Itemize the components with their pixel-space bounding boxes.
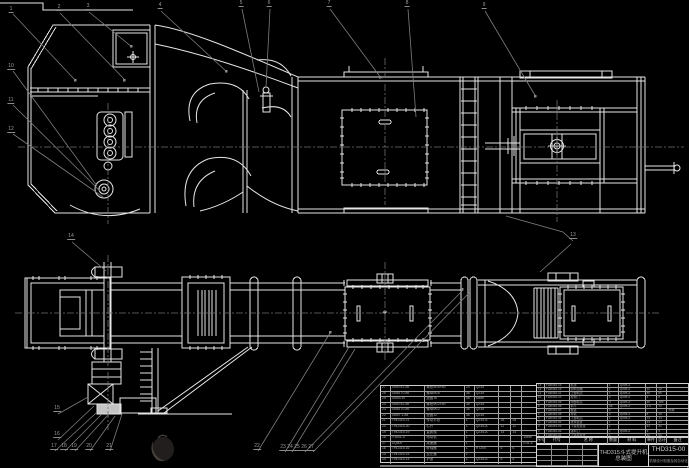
bom-cell: [522, 392, 536, 397]
bom-cell: [667, 413, 688, 416]
part-callout-number: 3: [86, 4, 91, 10]
bom-cell: [667, 425, 688, 428]
bom-cell: 直爬梯: [425, 431, 464, 436]
bom-cell: GB93-87: [391, 397, 426, 402]
bom-cell: 2: [537, 430, 545, 433]
bom-cell: 料斗: [570, 405, 608, 408]
bom-row: 14THD315-14护罩1Q235-A55: [381, 458, 536, 464]
part-callout-number: 7: [327, 1, 332, 7]
bom-cell: [522, 453, 536, 458]
boot-section: [460, 71, 674, 213]
bom-cell: 14: [499, 431, 511, 436]
bom-cell: [511, 453, 522, 458]
bom-cell: Q235: [475, 408, 500, 413]
bom-cell: 19: [381, 431, 391, 436]
stamp-seal: [151, 435, 174, 461]
bom-cell: 13: [537, 384, 545, 387]
part-callout-number: 11: [7, 98, 14, 104]
bom-cell: 1: [608, 421, 619, 424]
bom-cell: Q235-A: [619, 384, 646, 387]
bom-cell: THD315-04: [545, 421, 570, 424]
bom-cell: 1: [465, 453, 475, 458]
bom-cell: 65Mn: [475, 397, 500, 402]
bom-cell: 15: [381, 453, 391, 458]
bom-cell: 12: [537, 388, 545, 391]
ladder: [140, 352, 152, 401]
bom-cell: 4: [646, 396, 658, 399]
bom-cell: 17: [381, 442, 391, 447]
bom-cell: 螺母M12: [425, 408, 464, 413]
bom-cell: 14: [381, 458, 391, 464]
bom-header-row: 序号代号名 称数量材 料单件总计备注: [536, 437, 689, 444]
drawing-type: 总装图: [615, 456, 632, 462]
bom-cell: 传动平台: [425, 419, 464, 424]
bom-cell: 2: [608, 413, 619, 416]
bom-cell: THD315-03: [545, 425, 570, 428]
door-handle-slot: [377, 170, 389, 174]
bom-cell: 垫圈12: [425, 414, 464, 419]
bom-cell: 16: [657, 413, 667, 416]
bom-cell: 导轨: [570, 413, 608, 416]
bom-cell: [499, 392, 511, 397]
screw-end: [674, 165, 680, 171]
bom-cell: HT200: [475, 447, 500, 452]
bom-cell: ZQ500: [391, 442, 426, 447]
bom-cell: 1: [608, 430, 619, 433]
bom-cell: 25: [381, 397, 391, 402]
bom-cell: 24: [465, 386, 475, 391]
bom-cell: 74: [646, 417, 658, 420]
bom-cell: 张紧装置: [570, 421, 608, 424]
bom-cell: Q235-A: [619, 417, 646, 420]
bom-cell: 1: [608, 425, 619, 428]
bom-cell: 中部机壳: [570, 401, 608, 404]
bom-cell: 15kW: [522, 436, 536, 441]
part-callout-number: 12: [7, 127, 15, 133]
bom-cell: [499, 408, 511, 413]
bom-cell: 48: [465, 397, 475, 402]
bom-cell: 22: [381, 414, 391, 419]
bom-cell: 机罩: [570, 384, 608, 387]
bom-cell: [522, 397, 536, 402]
bom-cell: 74: [657, 417, 667, 420]
bom-cell: [475, 436, 500, 441]
part-callout-number: 21: [105, 444, 113, 450]
bom-cell: [499, 453, 511, 458]
part-callout-number: 6: [267, 1, 272, 7]
bom-cell: [619, 425, 646, 428]
bom-cell: [475, 453, 500, 458]
bom-cell: [499, 386, 511, 391]
bom-cell: 栏杆: [425, 425, 464, 430]
boot-plan: [478, 273, 637, 354]
bom-cell: 5: [537, 417, 545, 420]
bom-cell: [667, 396, 688, 399]
bom-cell: 螺栓M16×50: [425, 386, 464, 391]
bom-cell: Y160L-4: [391, 436, 426, 441]
part-callout-number: 2: [57, 5, 62, 11]
bom-cell: 4: [608, 401, 619, 404]
bom-cell: [522, 431, 536, 436]
bom-cell: Q235: [475, 403, 500, 408]
bom-cell: [667, 430, 688, 433]
bom-cell: Q235: [475, 392, 500, 397]
bom-cell: 1: [465, 442, 475, 447]
bom-cell: 36: [465, 414, 475, 419]
part-callout-number: 17: [50, 444, 58, 450]
bom-cell: Q235-A: [619, 405, 646, 408]
part-callout-number: 16: [53, 432, 61, 438]
part-callout-number: 10: [7, 64, 15, 70]
bom-cell: THD315-10: [545, 396, 570, 399]
centerlines: [15, 58, 684, 430]
bom-cell: 1: [465, 425, 475, 430]
part-callout-number: 27: [307, 445, 315, 451]
bom-cell: [522, 414, 536, 419]
bom-cell: THD315-07: [545, 409, 570, 412]
inspection-door-front: [340, 108, 429, 187]
bom-cell: 螺栓M12×40: [425, 403, 464, 408]
bom-cell: 20: [381, 425, 391, 430]
bom-cell: 48: [465, 392, 475, 397]
bom-cell: 1: [465, 447, 475, 452]
bom-cell: 5: [511, 458, 522, 464]
bom-cell: [646, 384, 658, 387]
bom-cell: 上部机壳: [570, 392, 608, 395]
bom-cell: [511, 397, 522, 402]
bom-cell: 45: [646, 401, 658, 404]
drawing-title-cell: THD315斗式提升机 总装图: [599, 445, 649, 466]
bom-cell: 1: [608, 417, 619, 420]
bom-cell: [619, 421, 646, 424]
reducer: [92, 362, 121, 384]
bom-cell: 72: [657, 405, 667, 408]
bom-cell: 板链: [570, 409, 608, 412]
bom-cell: 11: [511, 425, 522, 430]
bucket-upper: [189, 83, 249, 121]
bom-cell: THD315-15: [391, 453, 426, 458]
part-callout-number: 8: [405, 1, 410, 7]
bom-cell: 86: [657, 392, 667, 395]
bom-cell: 护罩: [425, 458, 464, 464]
bom-table-left: 27GB5782-86螺栓M16×5024Q23526GB6170-86螺母M1…: [380, 385, 537, 463]
signature-grid: [537, 445, 599, 466]
bom-cell: 27: [381, 386, 391, 391]
bom-cell: THD315-14: [391, 458, 426, 464]
bom-table-right: 13THD315-13机罩1Q235-A12THD315-12卸料溜槽1Q235…: [536, 383, 689, 437]
bom-cell: [499, 414, 511, 419]
bom-cell: Q235: [475, 414, 500, 419]
bom-cell: 9: [646, 430, 658, 433]
bucket-lower: [185, 157, 251, 206]
bom-cell: 逆止器: [425, 453, 464, 458]
bom-cell: [511, 386, 522, 391]
bom-cell: [619, 409, 646, 412]
bom-cell: [522, 408, 536, 413]
bom-cell: 14: [511, 431, 522, 436]
bom-cell: [667, 392, 688, 395]
bom-cell: 12: [657, 388, 667, 391]
bom-cell: GB5782-86: [391, 386, 426, 391]
bom-cell: [499, 442, 511, 447]
bom-cell: [511, 392, 522, 397]
front-view: [28, 25, 680, 216]
bom-cell: 23: [657, 421, 667, 424]
bom-cell: 1: [608, 384, 619, 387]
bom-cell: GB97.1-85: [391, 414, 426, 419]
bom-cell: GB6170-86: [391, 408, 426, 413]
part-callout-number: 22: [253, 444, 261, 450]
support-brace: [158, 347, 252, 413]
bom-cell: 螺母M16: [425, 392, 464, 397]
head-section: [28, 25, 155, 213]
part-callout-number: 1: [9, 7, 14, 13]
bom-cell: 28: [511, 419, 522, 424]
part-callout-number: 15: [53, 406, 61, 412]
bom-cell: 23: [381, 408, 391, 413]
cad-sheet: 27GB5782-86螺栓M16×5024Q23526GB6170-86螺母M1…: [0, 0, 689, 468]
bom-cell: 36: [465, 403, 475, 408]
bom-cell: 3: [537, 425, 545, 428]
bom-cell: 86: [646, 392, 658, 395]
bom-cell: 1: [465, 458, 475, 464]
bom-cell: Q235-A: [619, 396, 646, 399]
bom-cell: 11: [537, 392, 545, 395]
bom-cell: [667, 405, 688, 408]
bom-cell: i=31.5: [522, 442, 536, 447]
bom-cell: Q235-A: [475, 431, 500, 436]
bom-cell: 下部机壳: [570, 417, 608, 420]
bom-cell: GB5782-86: [391, 403, 426, 408]
bom-cell: [522, 403, 536, 408]
casing-flange: [250, 277, 258, 350]
bom-cell: 8: [537, 405, 545, 408]
bom-cell: 6: [537, 413, 545, 416]
bom-cell: 1: [465, 436, 475, 441]
motor-base: [97, 404, 121, 414]
bom-cell: [522, 419, 536, 424]
casing-flange: [637, 277, 645, 348]
bom-cell: 垫圈16: [425, 397, 464, 402]
transition-plan: [182, 275, 230, 350]
bom-cell: 8: [657, 396, 667, 399]
bom-cell: [511, 442, 522, 447]
bom-cell: 联轴器: [425, 447, 464, 452]
part-callout-number: 4: [158, 3, 163, 9]
bom-cell: 11: [499, 425, 511, 430]
bom-cell: [511, 403, 522, 408]
bom-cell: 10: [537, 396, 545, 399]
bom-cell: [499, 403, 511, 408]
drawing-number-cell: THD315-00 机械设计制造及其自动化: [649, 445, 688, 466]
bom-cell: THD315-05: [545, 417, 570, 420]
bom-cell: THD315-11: [545, 392, 570, 395]
bom-cell: 6: [511, 447, 522, 452]
bom-cell: THD315-12: [545, 388, 570, 391]
bom-cell: 23: [646, 421, 658, 424]
bom-cell: 180: [657, 401, 667, 404]
bom-cell: [657, 409, 667, 412]
part-callout-number: 20: [85, 444, 93, 450]
bom-cell: 外购: [667, 409, 688, 412]
bom-cell: THD315-09: [545, 401, 570, 404]
bom-cell: [511, 414, 522, 419]
bom-cell: 2: [608, 396, 619, 399]
bom-cell: 8: [646, 413, 658, 416]
bom-cell: THD315-19: [391, 431, 426, 436]
bom-cell: 2: [608, 409, 619, 412]
bucket-bolt-icon: [263, 87, 269, 93]
bom-cell: 9: [537, 401, 545, 404]
bom-cell: 18: [381, 436, 391, 441]
bom-cell: 26: [381, 392, 391, 397]
bom-cell: [667, 388, 688, 391]
bom-cell: Q235-A: [619, 388, 646, 391]
bom-cell: Q235-A: [475, 419, 500, 424]
bom-cell: Q235: [475, 386, 500, 391]
bom-cell: 31: [646, 425, 658, 428]
part-callout-number: 5: [239, 1, 244, 7]
part-callout-number: 9: [482, 3, 487, 9]
bom-cell: GB6170-86: [391, 392, 426, 397]
bom-cell: THD315-02: [545, 430, 570, 433]
bom-cell: [522, 386, 536, 391]
bom-cell: Q235-A: [475, 458, 500, 464]
bom-cell: THD315-20: [391, 425, 426, 430]
bom-cell: THD315-13: [545, 384, 570, 387]
part-callout-number: 13: [569, 233, 577, 239]
part-callout-number: 19: [70, 444, 78, 450]
bom-cell: 28: [499, 419, 511, 424]
bom-cell: Q235-A: [619, 392, 646, 395]
bom-cell: Q235-A: [619, 401, 646, 404]
organization-line: 机械设计制造及其自动化: [649, 456, 688, 466]
bom-cell: [522, 458, 536, 464]
bom-cell: 下链轮装置: [570, 425, 608, 428]
bom-cell: 1: [608, 392, 619, 395]
bom-cell: [475, 442, 500, 447]
bom-cell: 1.9: [646, 405, 658, 408]
casing-flange: [293, 277, 301, 350]
bom-cell: 16: [381, 447, 391, 452]
bom-cell: [667, 384, 688, 387]
bom-cell: Q235-A: [475, 425, 500, 430]
bom-cell: 减速器: [425, 442, 464, 447]
bom-cell: THD315-21: [391, 419, 426, 424]
top-flange-strip: [344, 72, 428, 77]
bom-cell: [522, 447, 536, 452]
bom-cell: 电动机: [425, 436, 464, 441]
bom-cell: [667, 421, 688, 424]
bom-cell: 进料口: [570, 430, 608, 433]
bom-cell: 38: [608, 405, 619, 408]
bom-cell: [667, 417, 688, 420]
discharge-section: [155, 25, 298, 213]
bom-cell: [522, 425, 536, 430]
bom-cell: 1: [608, 388, 619, 391]
bom-cell: 36: [465, 408, 475, 413]
takeup-screw: [645, 162, 674, 174]
drawing-number: THD315-00: [649, 445, 688, 456]
drive-unit-plan: [88, 262, 252, 414]
bom-cell: 12: [646, 388, 658, 391]
bom-cell: 5: [499, 458, 511, 464]
title-block: THD315斗式提升机 总装图 THD315-00 机械设计制造及其自动化: [536, 444, 689, 467]
bom-cell: 31: [657, 425, 667, 428]
bom-cell: 24: [381, 403, 391, 408]
bom-cell: [499, 397, 511, 402]
bom-cell: 21: [381, 419, 391, 424]
bom-cell: [499, 436, 511, 441]
bom-cell: 4: [537, 421, 545, 424]
bom-cell: 检视门: [570, 396, 608, 399]
bom-cell: [511, 408, 522, 413]
bom-cell: 1: [465, 419, 475, 424]
bom-cell: 9: [657, 430, 667, 433]
bom-cell: THD315-08: [545, 405, 570, 408]
part-callout-number: 18: [60, 444, 68, 450]
middle-casing: [298, 66, 645, 213]
bom-cell: THD315-06: [545, 413, 570, 416]
bom-cell: [646, 409, 658, 412]
bom-cell: 6: [499, 447, 511, 452]
bom-cell: Q235-A: [619, 413, 646, 416]
bom-cell: Q235-A: [619, 430, 646, 433]
bom-cell: [657, 384, 667, 387]
part-callout-number: 14: [67, 234, 75, 240]
bom-cell: 1: [465, 431, 475, 436]
bom-cell: [511, 436, 522, 441]
bom-cell: [667, 401, 688, 404]
bom-cell: THD315-16: [391, 447, 426, 452]
bom-cell: 卸料溜槽: [570, 388, 608, 391]
bom-cell: 7: [537, 409, 545, 412]
